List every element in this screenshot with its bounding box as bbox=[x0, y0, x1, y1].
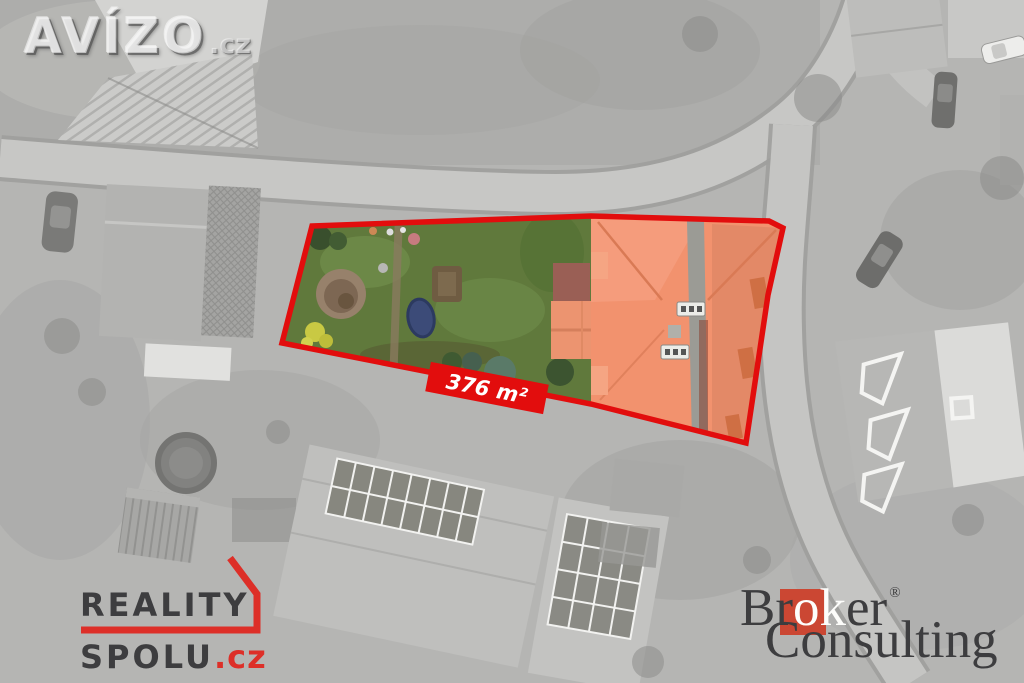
reality-line2: SPOLU.cz bbox=[80, 638, 267, 676]
avizo-watermark: AVÍZO .cz bbox=[24, 10, 251, 64]
avizo-tld-text: .cz bbox=[209, 29, 251, 60]
reality-line2-word: SPOLU bbox=[80, 638, 214, 676]
broker-line2: Consulting bbox=[765, 614, 998, 667]
registered-mark: ® bbox=[889, 585, 900, 601]
real-estate-aerial-photo: 376 m² AVÍZO .cz REALITY SPOLU.cz Broker… bbox=[0, 0, 1024, 683]
reality-line1: REALITY bbox=[80, 586, 250, 624]
avizo-brand-text: AVÍZO bbox=[24, 10, 207, 64]
reality-tld: .cz bbox=[214, 638, 267, 676]
reality-spolu-logo: REALITY SPOLU.cz bbox=[78, 552, 278, 677]
broker-consulting-logo: Broker® Consulting bbox=[740, 588, 990, 683]
